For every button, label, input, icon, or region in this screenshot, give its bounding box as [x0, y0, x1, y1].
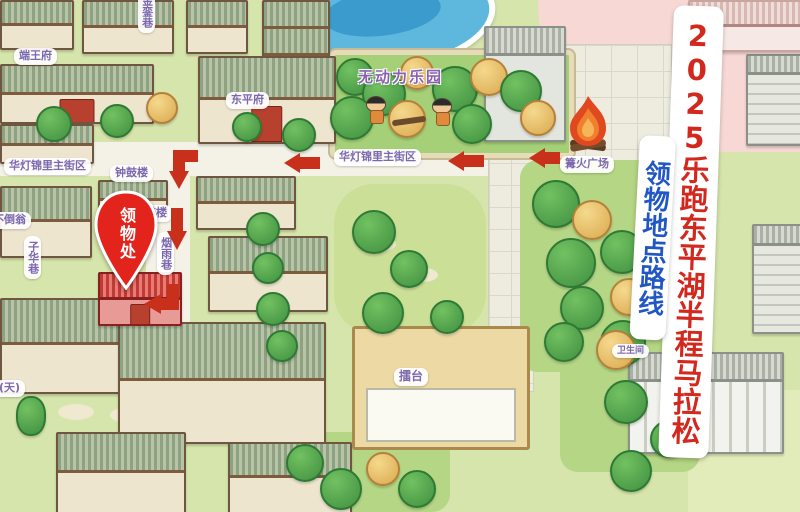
pickup-pin-label: 领物处 [92, 198, 160, 270]
route-arrow-6 [161, 284, 173, 304]
map-canvas: 领物处 端王府 金銮巷 东平府 无动力乐园 篝火广场 华灯锦里主街区 华灯锦里主… [0, 0, 800, 512]
route-arrow-4 [179, 156, 198, 173]
